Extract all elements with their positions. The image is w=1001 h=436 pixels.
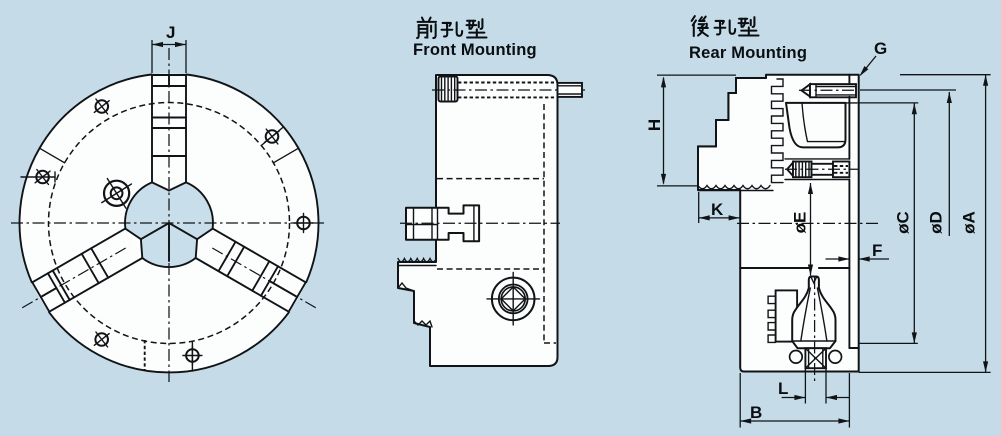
svg-text:øA: øA bbox=[960, 211, 979, 234]
svg-text:L: L bbox=[778, 379, 788, 398]
svg-text:øD: øD bbox=[927, 211, 946, 234]
svg-text:F: F bbox=[872, 241, 882, 260]
svg-text:øE: øE bbox=[791, 212, 810, 234]
svg-text:H: H bbox=[645, 119, 664, 131]
svg-text:øC: øC bbox=[894, 211, 913, 234]
svg-text:J: J bbox=[166, 23, 175, 42]
svg-text:Rear Mounting: Rear Mounting bbox=[689, 44, 807, 62]
svg-text:B: B bbox=[750, 403, 762, 422]
svg-text:G: G bbox=[874, 39, 887, 58]
svg-text:Front Mounting: Front Mounting bbox=[413, 41, 537, 59]
svg-text:K: K bbox=[711, 200, 724, 219]
